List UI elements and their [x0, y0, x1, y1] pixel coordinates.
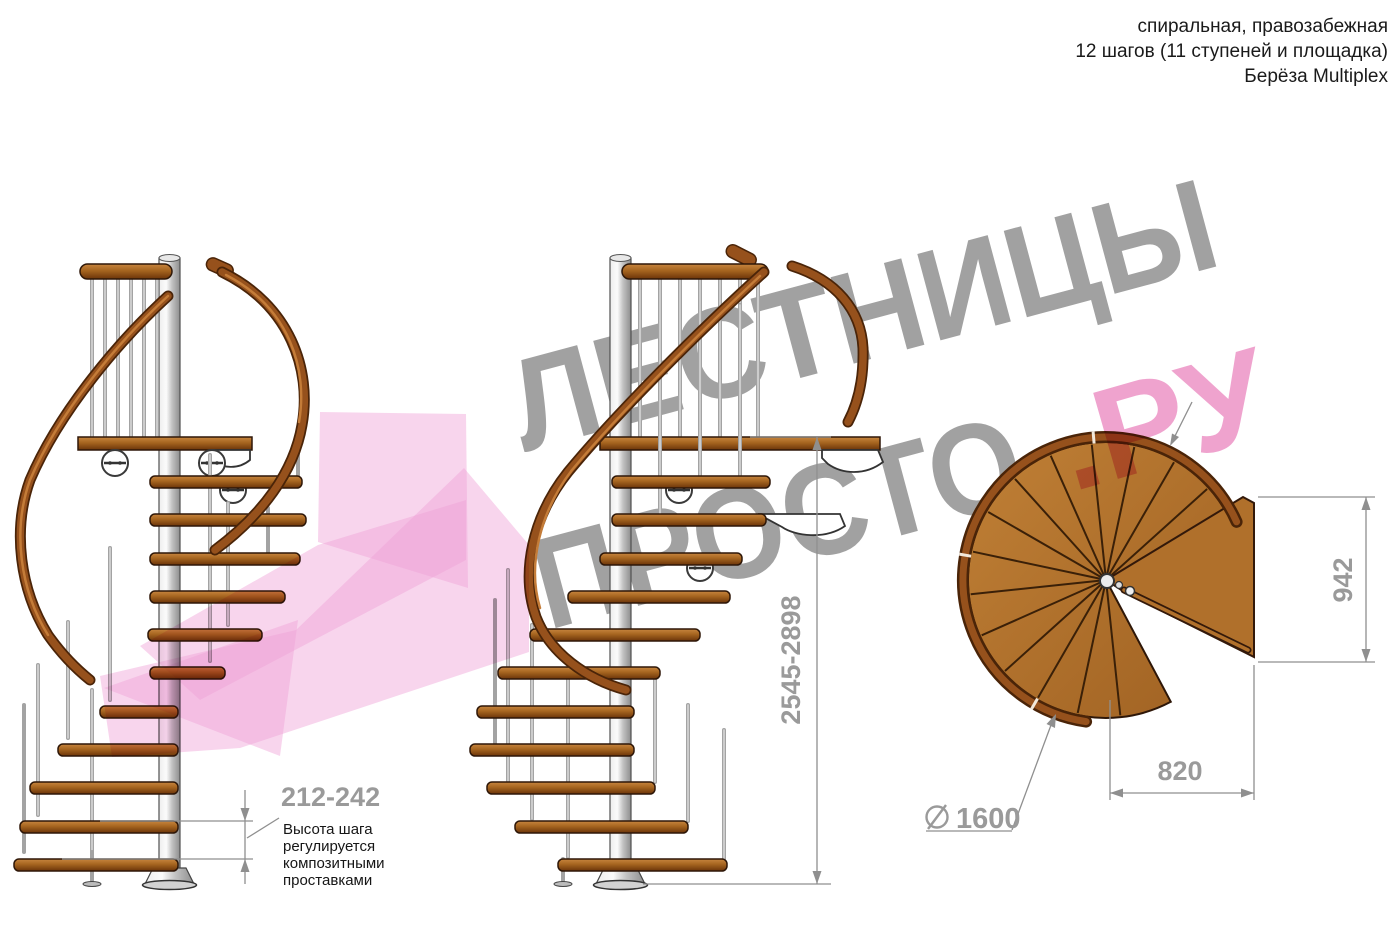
- side-view-middle: [470, 242, 883, 889]
- dimension-step-height: 212-242 Высота шага регулируется компози…: [62, 782, 385, 889]
- side-view-left: [14, 255, 306, 890]
- step-height-note-2: регулируется: [283, 838, 375, 855]
- dimension-landing-depth: 942: [1258, 497, 1375, 662]
- step-height-note-3: композитными: [283, 855, 385, 872]
- mount-flange: [102, 450, 128, 476]
- staircase-technical-drawing: 212-242 Высота шага регулируется компози…: [0, 0, 1400, 947]
- spec-line-steps: 12 шагов (11 ступеней и площадка): [1075, 39, 1388, 64]
- staircase-drawing-page: ЛЕСТНИЦЫ ПРОСТО: [0, 0, 1400, 947]
- spec-line-material: Берёза Multiplex: [1075, 64, 1388, 89]
- dimension-total-height: 2545-2898: [643, 437, 831, 884]
- top-plan-view: [959, 402, 1254, 722]
- dimension-diameter: 1600: [926, 714, 1056, 835]
- spec-info-block: спиральная, правозабежная 12 шагов (11 с…: [1075, 14, 1388, 89]
- landing-width-label: 820: [1157, 756, 1202, 786]
- rotation-arrow-icon: [1170, 402, 1192, 446]
- diameter-symbol-icon: [927, 805, 948, 829]
- step-height-label: 212-242: [281, 782, 380, 812]
- spec-line-type: спиральная, правозабежная: [1075, 14, 1388, 39]
- step-height-note-4: проставками: [283, 872, 372, 889]
- landing-depth-label: 942: [1328, 557, 1358, 602]
- step-height-note-1: Высота шага: [283, 821, 373, 838]
- wall-bracket: [822, 450, 883, 472]
- center-pole-plan: [1100, 574, 1114, 588]
- diameter-value-label: 1600: [956, 803, 1021, 835]
- wall-bracket: [758, 514, 845, 535]
- total-height-label: 2545-2898: [776, 595, 806, 724]
